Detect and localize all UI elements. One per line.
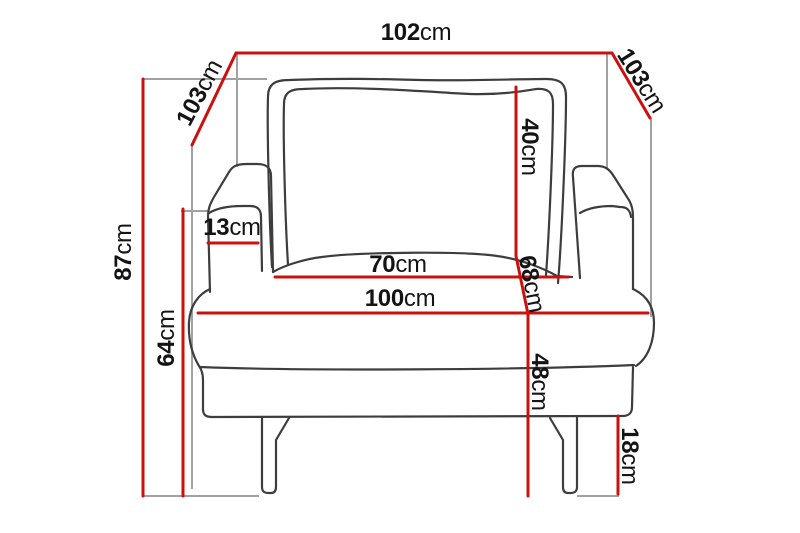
dim-label-leg-height: 18cm xyxy=(617,427,641,485)
dim-value: 64 xyxy=(153,341,180,367)
dim-label-backrest-height: 40cm xyxy=(517,118,541,176)
right-armrest xyxy=(573,166,633,289)
dim-value: 13 xyxy=(203,214,229,241)
dim-unit: cm xyxy=(153,309,180,340)
dim-unit: cm xyxy=(420,19,451,46)
dimension-diagram: 102cm 103cm 103cm 87cm 64cm 13cm 40cm 68… xyxy=(0,0,800,533)
dim-unit: cm xyxy=(404,285,435,312)
dim-value: 102 xyxy=(381,19,420,46)
dim-value: 70 xyxy=(369,251,395,278)
dim-value: 48 xyxy=(526,353,553,379)
dim-label-armrest-width: 13cm xyxy=(203,216,261,240)
left-leg xyxy=(262,417,289,493)
back-cushion-inner xyxy=(284,88,553,275)
dim-label-total-height: 87cm xyxy=(112,223,136,281)
dim-value: 87 xyxy=(110,255,137,281)
dim-label-top-width: 102cm xyxy=(381,21,452,45)
dim-value: 18 xyxy=(616,427,643,453)
dim-unit: cm xyxy=(516,144,543,175)
dim-label-seat-height: 48cm xyxy=(527,353,551,411)
dim-label-armrest-height: 64cm xyxy=(155,309,179,367)
right-armrest-crease xyxy=(580,206,631,217)
dim-unit: cm xyxy=(526,379,553,410)
base-bottom-edge xyxy=(212,367,633,417)
dim-unit: cm xyxy=(229,214,260,241)
dim-value: 40 xyxy=(516,118,543,144)
dim-label-front-width: 100cm xyxy=(365,287,436,311)
dim-unit: cm xyxy=(110,223,137,254)
dim-unit: cm xyxy=(395,251,426,278)
right-leg xyxy=(550,417,577,493)
seat-base-seam xyxy=(200,365,634,369)
dim-value: 100 xyxy=(365,285,404,312)
dim-unit: cm xyxy=(518,279,550,315)
dim-label-seat-width: 70cm xyxy=(369,253,427,277)
dim-unit: cm xyxy=(616,453,643,484)
